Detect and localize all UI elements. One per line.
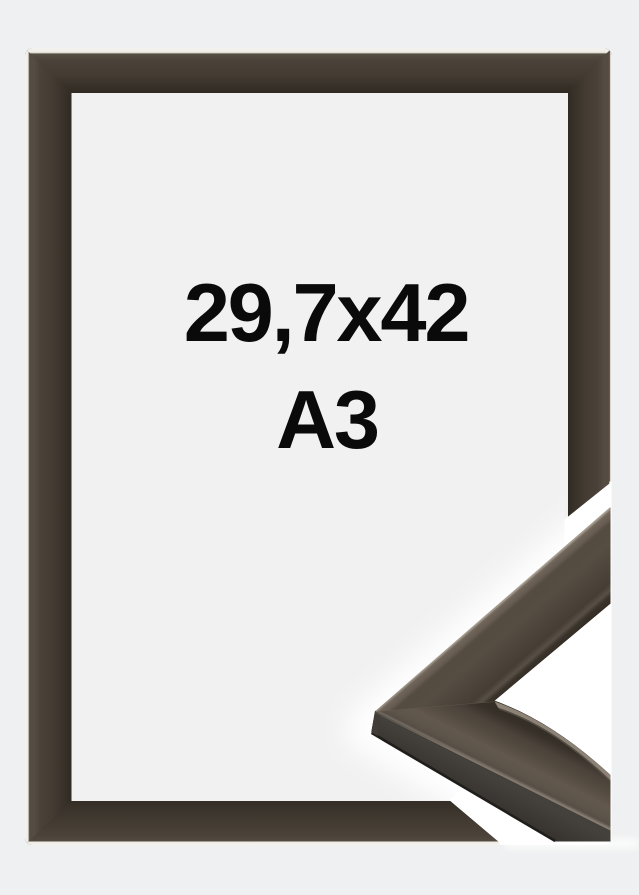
svg-text:29,7x42: 29,7x42 <box>184 266 469 359</box>
svg-text:A3: A3 <box>276 373 378 466</box>
